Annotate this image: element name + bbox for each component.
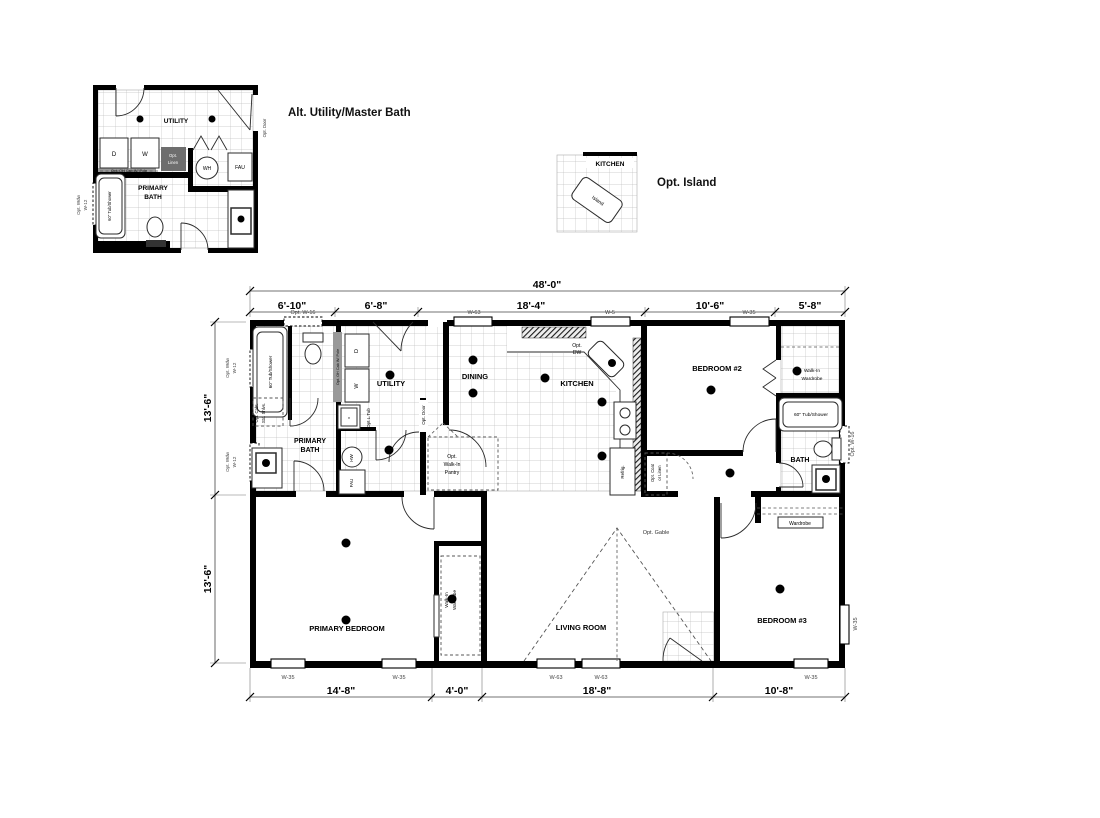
window-w35-bottom3: [794, 659, 828, 668]
text: Pantry: [445, 470, 460, 476]
wall: [188, 148, 193, 192]
dim-overall: 48'-0": [533, 279, 562, 291]
counter-hatch-top: [522, 327, 586, 338]
dot: [137, 116, 144, 123]
text: W-63: [467, 310, 480, 316]
text: v: [348, 415, 350, 420]
toilet-primary-bath: [305, 344, 321, 364]
window-w35-top: [730, 317, 769, 326]
text: W-35: [281, 675, 294, 681]
text: BATH: [144, 194, 162, 201]
text: Std. Shlvs.: [261, 403, 266, 423]
room-dining: DINING: [462, 372, 488, 381]
text: or Linen: [657, 465, 662, 481]
dot: [238, 216, 245, 223]
inset-room-utility: UTILITY: [164, 118, 189, 125]
dot: [598, 452, 607, 461]
wall: [434, 637, 439, 663]
box: [832, 438, 841, 460]
text: Opt. W-16: [291, 310, 316, 316]
dot: [822, 475, 830, 483]
dot: [262, 459, 270, 467]
window-w35-bottom2: [382, 659, 416, 668]
text: 60" Tub/Shower: [794, 412, 828, 418]
wall: [443, 322, 449, 425]
light-dining2: [469, 389, 478, 398]
text: W-12: [83, 199, 88, 210]
inset-room-primary-bath: PRIMARY: [138, 185, 168, 192]
bedroom3-door: [721, 503, 756, 538]
text: Opt.L.Tub: [366, 408, 371, 428]
inset-room-kitchen: KITCHEN: [596, 161, 625, 168]
light-kitchen: [541, 374, 550, 383]
dim-top-4: 10'-6": [696, 300, 725, 312]
text: W-35: [392, 675, 405, 681]
text: Opt.: [572, 343, 581, 349]
text: W-12: [232, 362, 237, 373]
text: Opt. Door: [262, 118, 267, 137]
window-w63-bottom2: [582, 659, 620, 668]
dim-top-3: 18'-4": [517, 300, 546, 312]
fillr: [146, 240, 166, 247]
text: DW: [573, 350, 582, 356]
text: Opt. Coat: [650, 463, 655, 482]
text: Opt.: [447, 454, 456, 460]
text: Walk-In: [444, 462, 461, 468]
text: D: [354, 349, 360, 353]
dot: [385, 446, 394, 455]
text: Opt. Wdw: [225, 357, 230, 378]
text: FAU: [349, 479, 354, 488]
dim-bottom-4: 10'-8": [765, 685, 794, 697]
window-w5-top: [591, 317, 630, 326]
text: 60" Tub/Shower: [268, 355, 273, 388]
text: Walk-In: [804, 368, 820, 374]
bedroom2-door: [743, 419, 776, 452]
text: Wardrobe: [789, 521, 811, 527]
light-bedroom2: [707, 386, 716, 395]
wall: [208, 248, 258, 253]
text: Opt. Cabt.: [254, 403, 259, 422]
room-bedroom2: BEDROOM #2: [692, 364, 742, 373]
dot: [598, 398, 607, 407]
dot: [726, 469, 735, 478]
dim-bottom-1: 14'-8": [327, 685, 356, 697]
room-bath2: BATH: [791, 457, 810, 464]
text: Linen: [168, 160, 179, 165]
light-primary-bedroom: [342, 539, 351, 548]
wall: [434, 491, 487, 497]
window-w63-top: [454, 317, 492, 326]
dim-bottom-3: 18'-8": [583, 685, 612, 697]
wall: [434, 541, 439, 595]
text: W: [354, 383, 360, 389]
floor-plan-drawing: 48'-0"6'-10"6'-8"18'-4"10'-6"5'-8"14'-8"…: [0, 0, 1100, 818]
dot: [342, 616, 351, 625]
text: Opt. Wdw: [225, 451, 230, 472]
text: W-35: [804, 675, 817, 681]
text: WH: [203, 166, 212, 172]
wall: [253, 85, 258, 95]
text: W-5: [605, 310, 615, 316]
wall: [714, 497, 720, 663]
wall: [776, 487, 781, 497]
text: FAU: [235, 165, 245, 171]
dim-left-2: 13'-6": [202, 565, 214, 594]
box: [303, 333, 323, 342]
text: Opt. Door: [421, 405, 426, 425]
text: Refrig.: [620, 465, 625, 478]
dot: [793, 367, 802, 376]
text: 60" Tub/Shower: [107, 191, 112, 221]
dot: [448, 595, 457, 604]
dot: [608, 359, 616, 367]
text: Opt. W-16: [850, 432, 856, 457]
room-primary-bedroom: PRIMARY BEDROOM: [309, 624, 384, 633]
light-utility: [386, 371, 395, 380]
opt-coat-closet: [645, 453, 667, 495]
opt-linen-cab: [161, 147, 186, 171]
dim-top-5: 5'-8": [799, 300, 822, 312]
wardrobe2-floor: [781, 326, 839, 393]
text: W-63: [594, 675, 607, 681]
dim-left-1: 13'-6": [202, 394, 214, 423]
plan-layers: 48'-0"6'-10"6'-8"18'-4"10'-6"5'-8"14'-8"…: [76, 85, 859, 702]
text: W-12: [232, 456, 237, 467]
text: Opt. Wdw: [76, 194, 81, 215]
room-bedroom3: BEDROOM #3: [757, 616, 807, 625]
dim-top-2: 6'-8": [365, 300, 388, 312]
wall: [776, 320, 781, 360]
text: Opt.: [169, 153, 177, 158]
window-optw16-top: [284, 317, 322, 326]
inset-kitchen-wall: [583, 152, 637, 156]
window-w35-bottom1: [271, 659, 305, 668]
circle: [620, 408, 630, 418]
room-primary-bath: PRIMARY: [294, 438, 326, 445]
wall: [641, 320, 647, 497]
window-w63-bottom1: [537, 659, 575, 668]
text: W-35: [742, 310, 755, 316]
dim-bottom-2: 4'-0": [446, 685, 469, 697]
opt-coat-door: [667, 453, 693, 479]
dot: [209, 116, 216, 123]
wardrobe2-bifold: [763, 360, 776, 378]
text: W-63: [549, 675, 562, 681]
text: W-35: [853, 617, 859, 630]
text: Opt. OH Cab W/ Pole: [336, 349, 340, 385]
window-w35-right: [840, 605, 849, 644]
box: [434, 595, 439, 637]
wall: [481, 497, 487, 663]
text: Opt. OH Cab W/ Pole: [111, 169, 147, 173]
floor-plan-page: Alt. Utility/Master Bath Opt. Island 48'…: [0, 0, 1100, 818]
light-dining1: [469, 356, 478, 365]
room-living: LIVING ROOM: [556, 623, 606, 632]
text: BATH: [301, 447, 320, 454]
text: HW: [349, 454, 354, 462]
path: [763, 378, 776, 396]
text: D: [112, 152, 117, 158]
room-utility: UTILITY: [377, 379, 405, 388]
text: W: [142, 152, 148, 158]
wall: [641, 491, 678, 497]
text: Opt. Gable: [643, 530, 670, 536]
wall: [434, 541, 486, 546]
inset-toilet: [147, 217, 163, 237]
text: Wardrobe: [802, 376, 823, 382]
wall: [144, 85, 258, 90]
wall: [755, 497, 761, 523]
circle: [620, 425, 630, 435]
room-kitchen: KITCHEN: [560, 379, 593, 388]
wall: [776, 393, 845, 398]
toilet-bath2: [814, 441, 832, 457]
wall: [250, 491, 296, 497]
light-bedroom3: [776, 585, 785, 594]
primary-bedroom-door: [402, 497, 434, 529]
